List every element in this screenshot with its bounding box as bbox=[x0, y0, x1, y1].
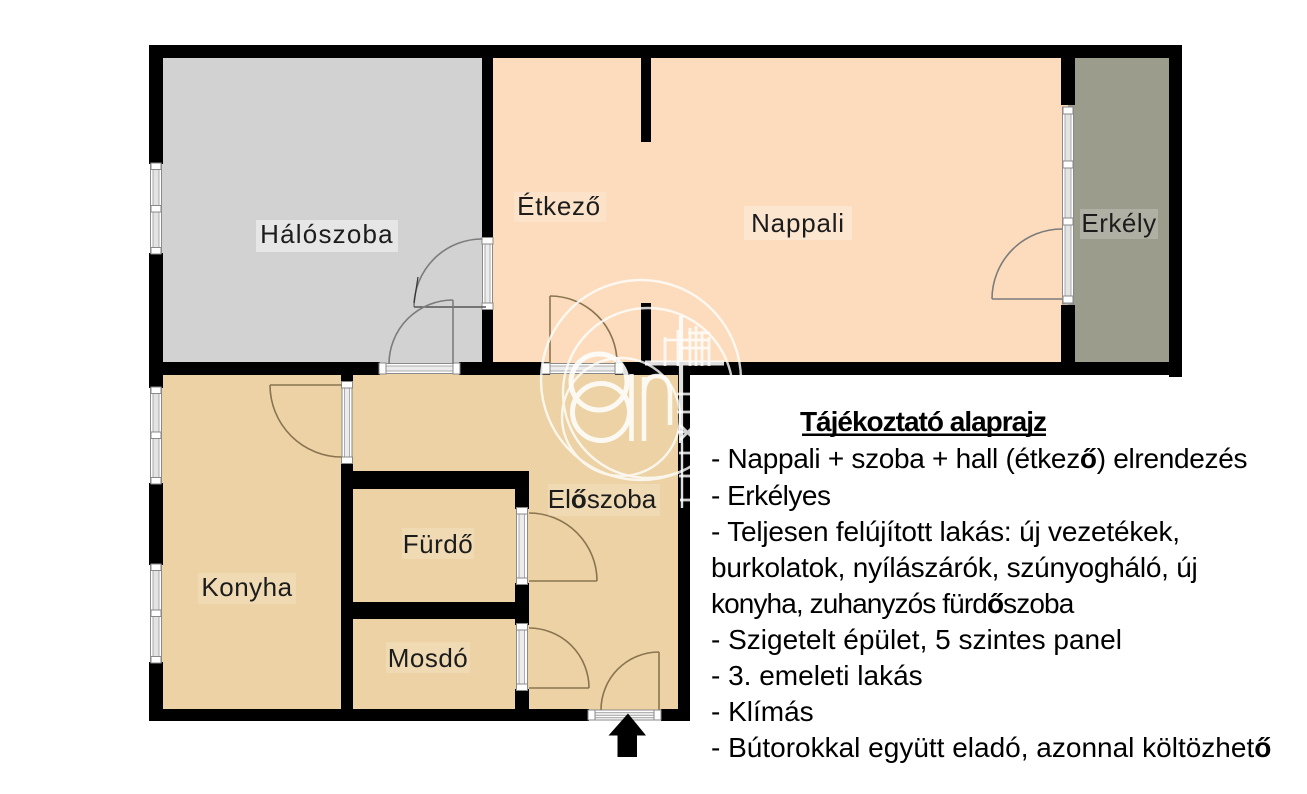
svg-text:- Klímás: - Klímás bbox=[711, 696, 814, 727]
svg-text:burkolatok, nyílászárók, szúny: burkolatok, nyílászárók, szúnyogháló, új bbox=[711, 552, 1198, 583]
svg-text:- 3. emeleti lakás: - 3. emeleti lakás bbox=[711, 660, 923, 691]
svg-text:- Szigetelt épület, 5 szintes: - Szigetelt épület, 5 szintes panel bbox=[711, 624, 1122, 655]
svg-text:- Teljesen felújított lakás: ú: - Teljesen felújított lakás: új vezetéke… bbox=[711, 516, 1180, 547]
svg-text:Nappali: Nappali bbox=[751, 208, 845, 238]
svg-text:Hálószoba: Hálószoba bbox=[260, 219, 394, 249]
svg-text:- Bútorokkal együtt eladó, azo: - Bútorokkal együtt eladó, azonnal költö… bbox=[711, 732, 1271, 763]
svg-text:Konyha: Konyha bbox=[201, 572, 292, 602]
svg-text:Mosdó: Mosdó bbox=[388, 643, 469, 673]
svg-text:Erkély: Erkély bbox=[1081, 208, 1156, 238]
svg-text:Étkező: Étkező bbox=[517, 191, 601, 221]
svg-text:- Nappali + szoba + hall (étke: - Nappali + szoba + hall (étkező) elrend… bbox=[711, 443, 1247, 474]
svg-text:Előszoba: Előszoba bbox=[548, 484, 657, 514]
svg-text:konyha, zuhanyzós fürdőszoba: konyha, zuhanyzós fürdőszoba bbox=[711, 588, 1075, 619]
svg-text:Fürdő: Fürdő bbox=[403, 529, 473, 559]
svg-text:- Erkélyes: - Erkélyes bbox=[711, 480, 830, 511]
svg-text:Tájékoztató alaprajz: Tájékoztató alaprajz bbox=[800, 406, 1046, 437]
